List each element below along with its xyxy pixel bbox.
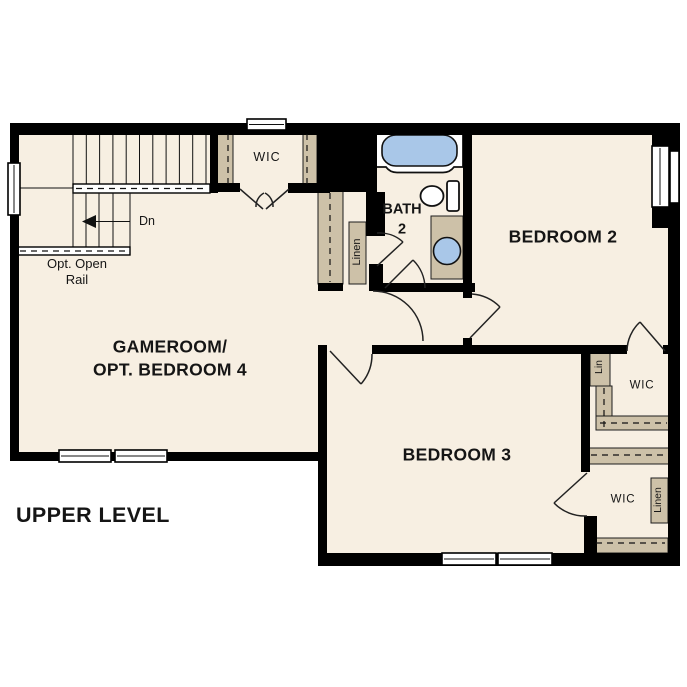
wic3-wall-bottom — [593, 538, 668, 553]
window-bedroom2-sill — [670, 151, 679, 203]
gameroom-label: GAMEROOM/ OPT. BEDROOM 4 — [93, 335, 247, 381]
bath-label: BATH 2 — [382, 200, 421, 241]
lin-closet-label: Lin — [593, 360, 607, 374]
bedroom3-label: BEDROOM 3 — [403, 444, 512, 467]
vanity-sink — [431, 216, 463, 279]
wic-main-label: WIC — [253, 149, 280, 165]
stairs-down-label: Dn — [139, 213, 155, 229]
wic-bedroom3-label: WIC — [611, 493, 636, 508]
bathtub — [376, 130, 463, 173]
wic-divider-wall — [588, 448, 670, 464]
level-title: UPPER LEVEL — [16, 502, 170, 530]
bedroom2-label: BEDROOM 2 — [509, 226, 618, 249]
floorplan-canvas: GAMEROOM/ OPT. BEDROOM 4 BEDROOM 2 BEDRO… — [0, 0, 687, 687]
wic-bedroom2-label: WIC — [630, 379, 655, 394]
linen-wic-label: Linen — [652, 487, 666, 513]
wic-wall-right — [303, 132, 317, 185]
linen-hall-label: Linen — [350, 239, 364, 266]
opt-open-rail-label: Opt. Open Rail — [47, 256, 107, 289]
